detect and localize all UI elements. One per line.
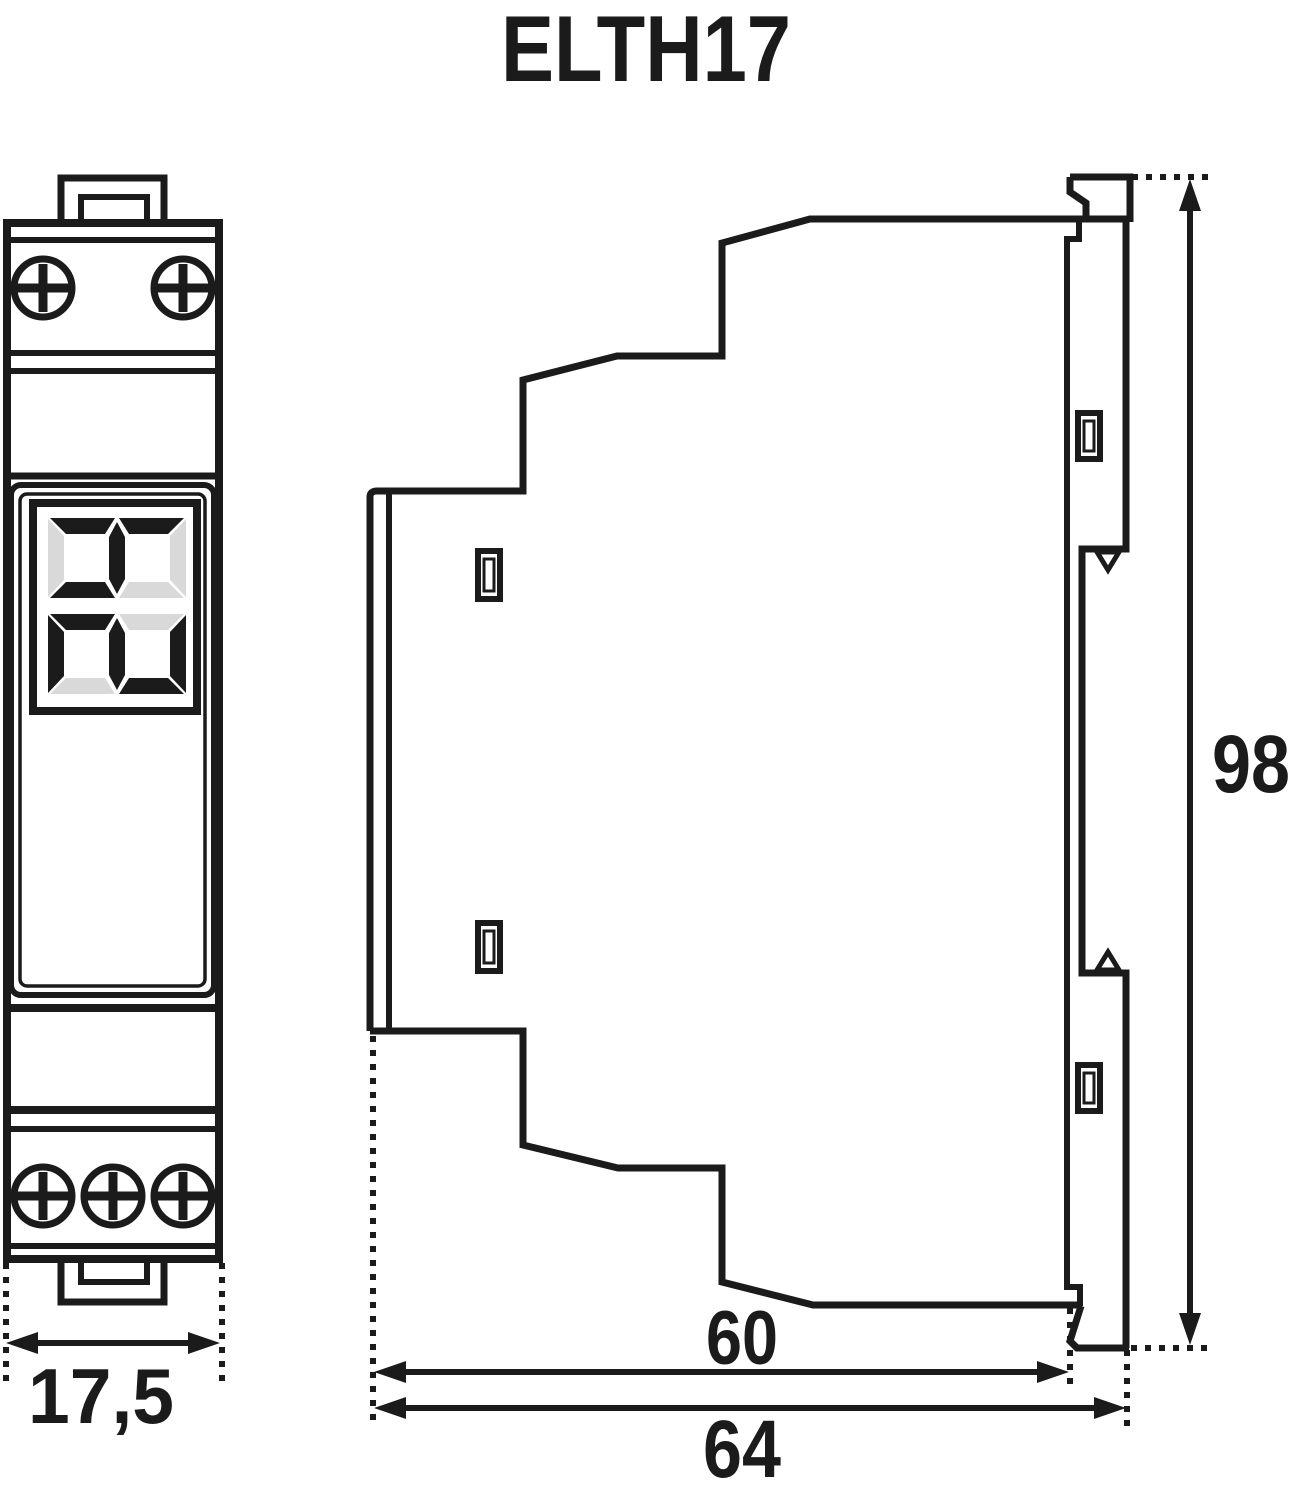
arrowhead-down-icon xyxy=(1179,1313,1201,1345)
segment-a xyxy=(48,519,64,597)
dimension-side-depth-total: 64 xyxy=(374,1397,1126,1495)
vent-slot-inner xyxy=(484,931,494,963)
side-rear-edge xyxy=(1082,222,1126,1348)
side-profile-bottom xyxy=(370,1031,1082,1305)
dimension-drawing-page: ELTH17 xyxy=(0,0,1291,1500)
terminal-screws-top xyxy=(14,259,212,317)
page-title: ELTH17 xyxy=(501,0,791,101)
segment-g xyxy=(109,618,125,690)
front-view xyxy=(3,178,223,1302)
arrowhead-left-icon xyxy=(374,1397,406,1419)
side-view xyxy=(370,177,1130,1348)
seven-segment-digit-top xyxy=(48,518,186,598)
segment-g xyxy=(109,522,125,594)
segment-d xyxy=(170,615,186,693)
dimension-label-front-width: 17,5 xyxy=(28,1352,174,1440)
arrowhead-left-icon xyxy=(6,1332,38,1354)
din-clip-bottom xyxy=(1070,1306,1129,1348)
front-bottom-tab-inner xyxy=(81,1263,147,1282)
din-clip-top xyxy=(1070,177,1130,222)
dimension-label-side-depth-total: 64 xyxy=(703,1404,781,1495)
dimension-side-depth-body: 60 xyxy=(374,1296,1069,1383)
front-body-outline xyxy=(7,223,219,1259)
dimension-side-height: 98 xyxy=(1179,179,1290,1345)
dimensions: 17,5 98 60 64 xyxy=(6,177,1290,1495)
dimension-label-side-depth-body: 60 xyxy=(706,1296,778,1381)
technical-drawing: ELTH17 xyxy=(0,0,1291,1500)
vent-slot-inner xyxy=(484,559,494,591)
rail-tooth-top xyxy=(1097,552,1119,570)
arrowhead-left-icon xyxy=(374,1361,406,1383)
segment-d xyxy=(170,519,186,597)
segment-a xyxy=(48,615,64,693)
dimension-front-width: 17,5 xyxy=(6,1332,220,1440)
arrowhead-up-icon xyxy=(1179,179,1201,211)
side-profile-top xyxy=(370,219,1127,1031)
vent-slots xyxy=(478,413,1100,1111)
vent-slot-inner xyxy=(1084,421,1094,451)
rail-tooth-bottom xyxy=(1097,952,1119,970)
arrowhead-right-icon xyxy=(1094,1397,1126,1419)
dimension-label-side-height: 98 xyxy=(1212,719,1290,810)
arrowhead-right-icon xyxy=(1037,1361,1069,1383)
arrowhead-right-icon xyxy=(188,1332,220,1354)
front-top-tab-inner xyxy=(81,197,147,219)
display-bezel xyxy=(11,485,214,995)
side-rear-inner-edge xyxy=(1067,222,1080,1306)
terminal-screws-bottom xyxy=(14,1167,212,1225)
vent-slot-inner xyxy=(1084,1073,1094,1103)
seven-segment-digit-bottom xyxy=(48,614,186,694)
